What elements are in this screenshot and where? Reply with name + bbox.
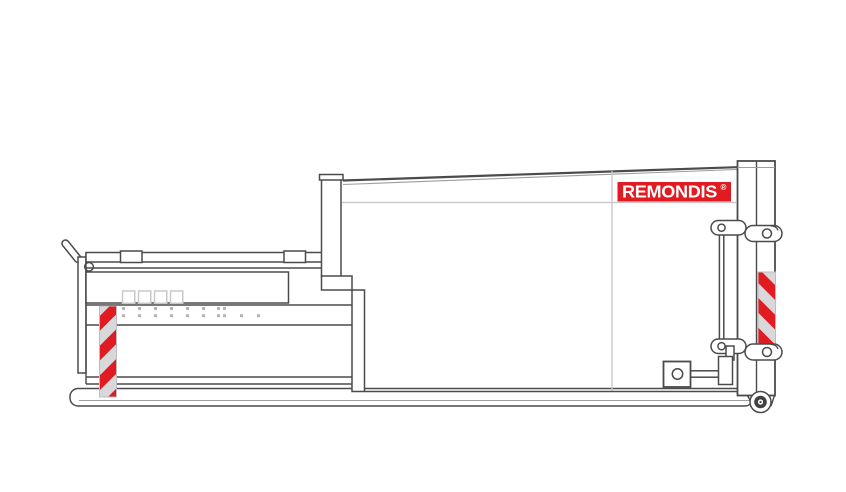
top-hinge-pin	[718, 224, 725, 231]
wheel-axle	[759, 401, 761, 403]
container-front-wall	[352, 290, 365, 392]
logo-text: REMONDIS	[622, 182, 717, 202]
control-square	[171, 291, 183, 303]
upper-panel	[86, 272, 289, 303]
tower-column	[322, 176, 342, 277]
control-square	[155, 291, 167, 303]
press-feed-unit	[66, 244, 353, 398]
door-lock-rod	[719, 231, 723, 346]
lift-hook-arm	[66, 244, 79, 260]
logo-registered-mark: ®	[721, 183, 727, 192]
latch-handle	[719, 357, 733, 385]
page-background: REMONDIS ®	[0, 0, 846, 492]
container-top-edge	[343, 167, 737, 180]
top-hinge-bracket-inner	[711, 221, 746, 236]
rivet-dots	[122, 307, 260, 317]
control-square	[139, 291, 151, 303]
bottom-hinge-pin	[718, 343, 725, 350]
control-square	[123, 291, 135, 303]
press-container-drawing: REMONDIS ®	[0, 0, 846, 492]
feed-lid	[86, 251, 322, 268]
press-body-panel	[86, 272, 289, 303]
tower-foot	[322, 276, 353, 290]
rivet-band	[86, 305, 352, 325]
hazard-marking-rear	[758, 272, 776, 345]
hazard-marking-left	[100, 306, 117, 397]
press-tower	[320, 175, 353, 291]
front-post	[78, 257, 86, 373]
latch-pin-circle	[672, 369, 682, 379]
bottom-hinge-hook-eye	[763, 348, 772, 357]
tower-cap	[320, 175, 344, 181]
lid-handle-left	[121, 251, 143, 263]
lid-handle-right	[284, 251, 306, 263]
top-hinge-hook-eye	[763, 229, 772, 238]
remondis-logo: REMONDIS ®	[618, 182, 732, 202]
